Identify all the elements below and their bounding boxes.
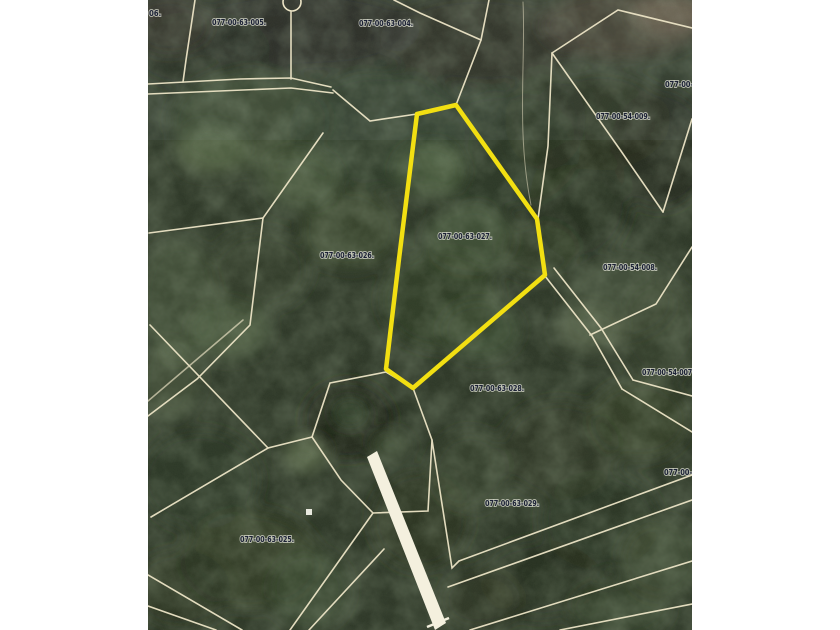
- parcel-label: 077-00-63-025.: [240, 535, 294, 544]
- parcel-label: 06.: [149, 9, 161, 18]
- parcel-label: 077-00-63-004.: [359, 19, 413, 28]
- parcel-label: 077-00-63-005.: [212, 18, 266, 27]
- parcel-label: 077-00-54-008.: [603, 263, 657, 272]
- parcel-label: 077-00-54-009.: [596, 112, 650, 121]
- parcel-label: 077-00-54-007: [642, 368, 692, 377]
- parcel-label: 077-00-63-028.: [470, 384, 524, 393]
- parcel-label: 077-00-63-029.: [485, 499, 539, 508]
- parcel-label: 077-00-: [664, 468, 692, 477]
- parcel-label: 077-00-: [665, 80, 693, 89]
- forest-texture: [130, 0, 712, 630]
- parcel-map-screen: 06. 077-00-63-005. 077-00-63-004. 077-00…: [0, 0, 840, 630]
- parcel-label: 077-00-63-026.: [320, 251, 374, 260]
- survey-square-marker: [306, 509, 312, 515]
- parcel-label: 077-00-63-027.: [438, 232, 492, 241]
- aerial-parcel-map[interactable]: 06. 077-00-63-005. 077-00-63-004. 077-00…: [0, 0, 840, 630]
